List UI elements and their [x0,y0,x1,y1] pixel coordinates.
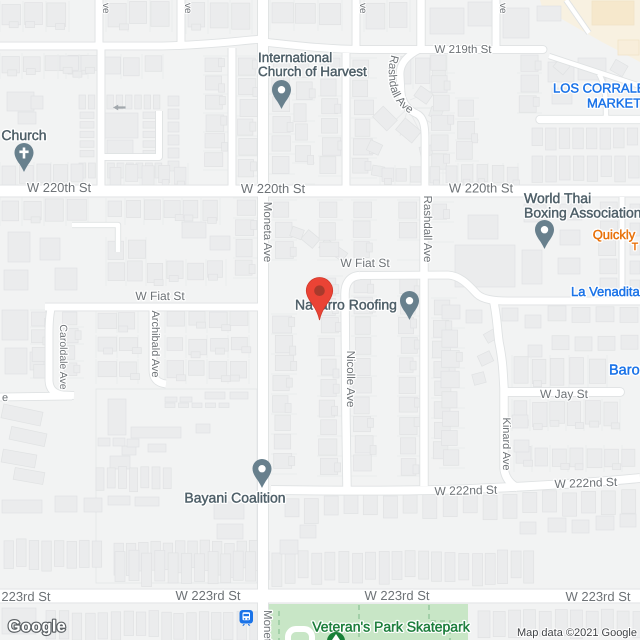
svg-text:W 223rd St: W 223rd St [175,588,240,603]
svg-text:W Jay St: W Jay St [540,387,589,401]
svg-text:MARKET: MARKET [587,96,640,111]
svg-text:T: T [632,241,639,253]
svg-text:LOS CORRALES: LOS CORRALES [553,81,640,96]
svg-text:Barons: Barons [609,363,640,379]
svg-text:Church: Church [1,127,46,143]
svg-text:W 220th St: W 220th St [27,180,92,195]
svg-text:Quickly: Quickly [593,227,636,242]
svg-text:W 223rd St: W 223rd St [565,589,630,604]
svg-text:Google: Google [8,618,66,636]
svg-text:ve: ve [357,3,368,14]
svg-text:Caroldale Ave: Caroldale Ave [57,324,69,389]
svg-text:International: International [258,50,332,65]
svg-text:W 222nd St: W 222nd St [434,483,498,499]
svg-text:e: e [2,392,8,404]
svg-text:Boxing Association: Boxing Association [524,205,640,221]
svg-text:W 223rd St: W 223rd St [364,588,429,603]
svg-text:Kinard Ave: Kinard Ave [500,417,512,470]
svg-text:Archibald Ave: Archibald Ave [149,310,161,377]
svg-text:W Fiat St: W Fiat St [135,289,185,303]
svg-text:Church of Harvest: Church of Harvest [258,64,367,79]
svg-text:W 220th St: W 220th St [449,181,514,196]
svg-text:W 220th St: W 220th St [241,181,306,196]
svg-text:Moneta: Moneta [261,610,273,640]
svg-text:Bayani Coalition: Bayani Coalition [184,490,285,506]
svg-text:W Fiat St: W Fiat St [340,256,390,270]
svg-text:W 219th St: W 219th St [435,44,493,56]
svg-text:ve: ve [497,3,508,14]
svg-text:W 222nd St: W 222nd St [554,475,618,491]
svg-text:ve: ve [100,3,111,14]
svg-text:ve: ve [182,3,193,14]
svg-text:W 223rd St: W 223rd St [0,589,51,604]
svg-text:La Venadita: La Venadita [571,284,640,299]
svg-text:Rashdall Ave: Rashdall Ave [421,196,433,263]
svg-text:Nicolle Ave: Nicolle Ave [344,351,356,408]
svg-text:Map data ©2021 Google: Map data ©2021 Google [517,627,637,639]
svg-text:Moneta Ave: Moneta Ave [261,202,273,263]
